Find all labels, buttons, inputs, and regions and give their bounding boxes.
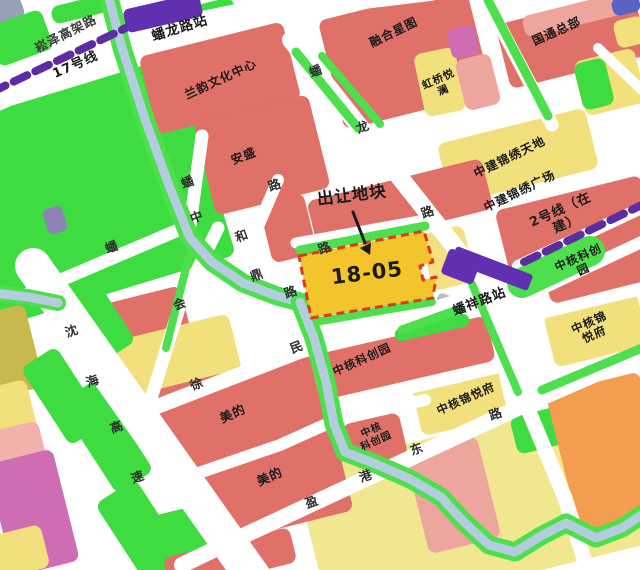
road-char: 蟠 (178, 170, 196, 192)
road-char: 中 (187, 205, 205, 227)
ronghe-label: 融合星图 (368, 15, 421, 50)
line17-label: 17号线 (51, 49, 101, 82)
road-char: 蟠 (306, 59, 324, 81)
road-char: 速 (128, 465, 146, 487)
road-char: 港 (356, 464, 374, 486)
guotong-label: 国通总部 (530, 15, 583, 49)
road-char: 鼎 (247, 263, 265, 285)
road-char: 路 (315, 236, 333, 258)
kechuang-s-label: 中核 科创园 (354, 419, 394, 453)
songze-elevated-label: 崧泽高架路 (33, 12, 100, 55)
kechuang-c-label: 中核科创园 (331, 341, 393, 378)
road-char: 蟠 (102, 235, 120, 257)
road-char: 龙 (353, 115, 371, 137)
sale-parcel-number: 18-05 (330, 257, 405, 290)
road-char: 徐 (187, 372, 205, 394)
road-char: 路 (281, 280, 299, 302)
road-char: 会 (170, 292, 188, 314)
road-char: 路 (486, 402, 504, 424)
road-char: 东 (407, 437, 425, 459)
road-char: 盈 (302, 490, 320, 512)
meidi-1-label: 美的 (218, 402, 249, 426)
road-char: 和 (232, 224, 250, 246)
road-char: 沈 (62, 319, 80, 341)
anshen-label: 安盛 (229, 146, 258, 168)
sale-callout: 出让地块 (316, 182, 388, 209)
road-char: 海 (83, 369, 101, 391)
road-char: 路 (265, 173, 283, 195)
map-canvas: 蟠龙路蟠路蟠中和鼎路路会沈海高速徐民盈港东路崧泽高架路17号线蟠龙路站兰韵文化中… (0, 0, 640, 570)
yuelan-label: 虹桥悦 澜 (420, 67, 461, 103)
kechuang-r-label: 中核科创园 (549, 240, 614, 288)
line2-label: 2号线（在建） (523, 189, 605, 247)
lanyun-label: 兰韵文化中心 (183, 57, 260, 102)
road-char: 高 (107, 415, 125, 437)
road-char: 民 (287, 335, 305, 357)
jinyue-r-label: 中核锦悦府 (565, 307, 620, 351)
meidi-2-label: 美的 (255, 465, 286, 489)
road-char: 路 (418, 200, 436, 222)
panxiang-station-label: 蟠祥路站 (451, 286, 509, 320)
overlay-layer: 蟠龙路蟠路蟠中和鼎路路会沈海高速徐民盈港东路崧泽高架路17号线蟠龙路站兰韵文化中… (0, 0, 640, 570)
